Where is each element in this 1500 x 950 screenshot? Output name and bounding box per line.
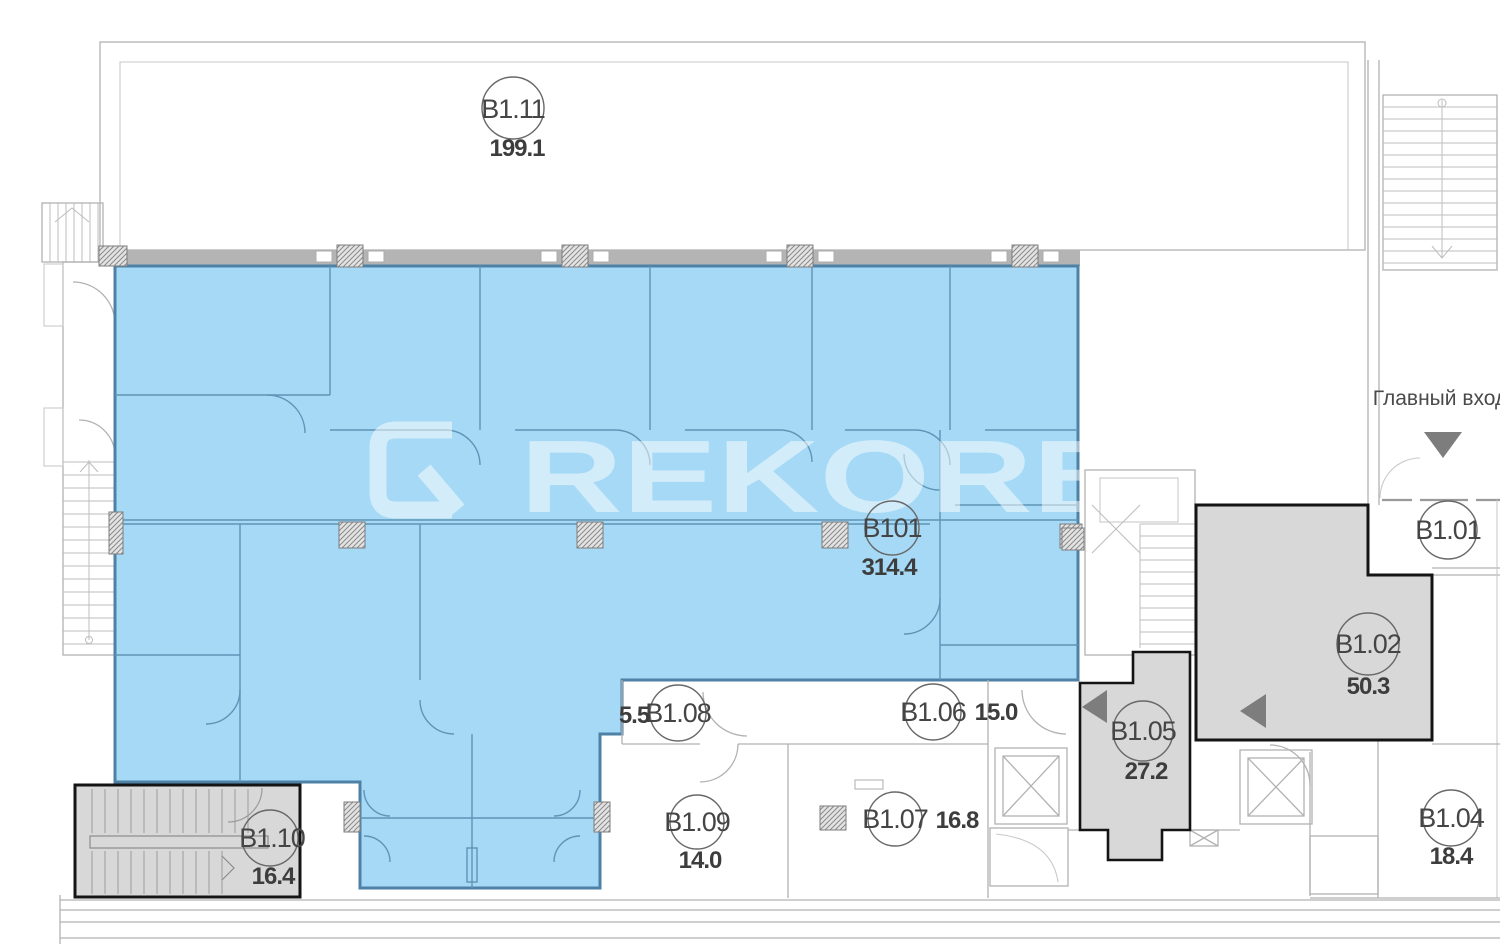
room-area: 14.0 (679, 847, 722, 874)
right-facade (1310, 60, 1500, 898)
room-area: 16.8 (936, 807, 979, 834)
room-label-b108[interactable]: B1.08 5.5 (619, 685, 711, 741)
main-entrance-label: Главный вход (1373, 387, 1500, 410)
room-area: 50.3 (1347, 673, 1390, 700)
room-area: 15.0 (975, 699, 1018, 726)
room-label-b107[interactable]: B1.07 16.8 (862, 792, 979, 846)
room-label-b111[interactable]: B1.11 199.1 (481, 77, 545, 162)
bottom-facade (60, 895, 1500, 944)
room-area: 27.2 (1125, 758, 1168, 785)
room-area: 314.4 (861, 554, 918, 581)
watermark-text: REKORB (520, 419, 1135, 534)
main-entrance: Главный вход (1373, 387, 1500, 458)
room-code: B1.08 (645, 698, 711, 728)
room-code: B1.04 (1418, 803, 1485, 833)
unit-b105-shape[interactable] (1080, 652, 1190, 860)
room-label-b101r[interactable]: B1.01 (1415, 501, 1481, 559)
room-area: 199.1 (489, 135, 545, 162)
elevator-shaft-icon (995, 748, 1067, 824)
room-code: B1.09 (664, 807, 730, 837)
stairs-icon (63, 460, 115, 644)
room-area: 18.4 (1430, 843, 1474, 870)
stairs-icon (1383, 99, 1497, 263)
room-label-b106[interactable]: B1.06 15.0 (900, 684, 1018, 740)
unit-b105[interactable] (1080, 652, 1190, 860)
room-code: B1.10 (239, 823, 305, 853)
unit-b102-shape[interactable] (1196, 505, 1432, 740)
stairs-icon (50, 203, 98, 262)
left-exterior-strip (42, 203, 115, 655)
room-code: B101 (862, 513, 921, 543)
room-area: 5.5 (619, 702, 650, 729)
room-code: B1.01 (1415, 515, 1481, 545)
room-area: 16.4 (252, 863, 296, 890)
entrance-arrow-icon (1424, 432, 1462, 458)
terrace-b111 (100, 42, 1365, 266)
room-code: B1.02 (1335, 629, 1401, 659)
room-code: B1.11 (481, 94, 545, 124)
room-label-b101[interactable]: B101 314.4 (861, 501, 921, 581)
room-code: B1.07 (862, 804, 928, 834)
unit-b102[interactable] (1196, 505, 1432, 740)
room-code: B1.06 (900, 697, 966, 727)
room-code: B1.05 (1110, 716, 1176, 746)
room-label-b109[interactable]: B1.09 14.0 (664, 795, 730, 874)
room-label-b104[interactable]: B1.04 18.4 (1418, 790, 1485, 870)
elevator-shaft-icon (1240, 750, 1312, 824)
floor-plan: REKORB (0, 0, 1500, 950)
